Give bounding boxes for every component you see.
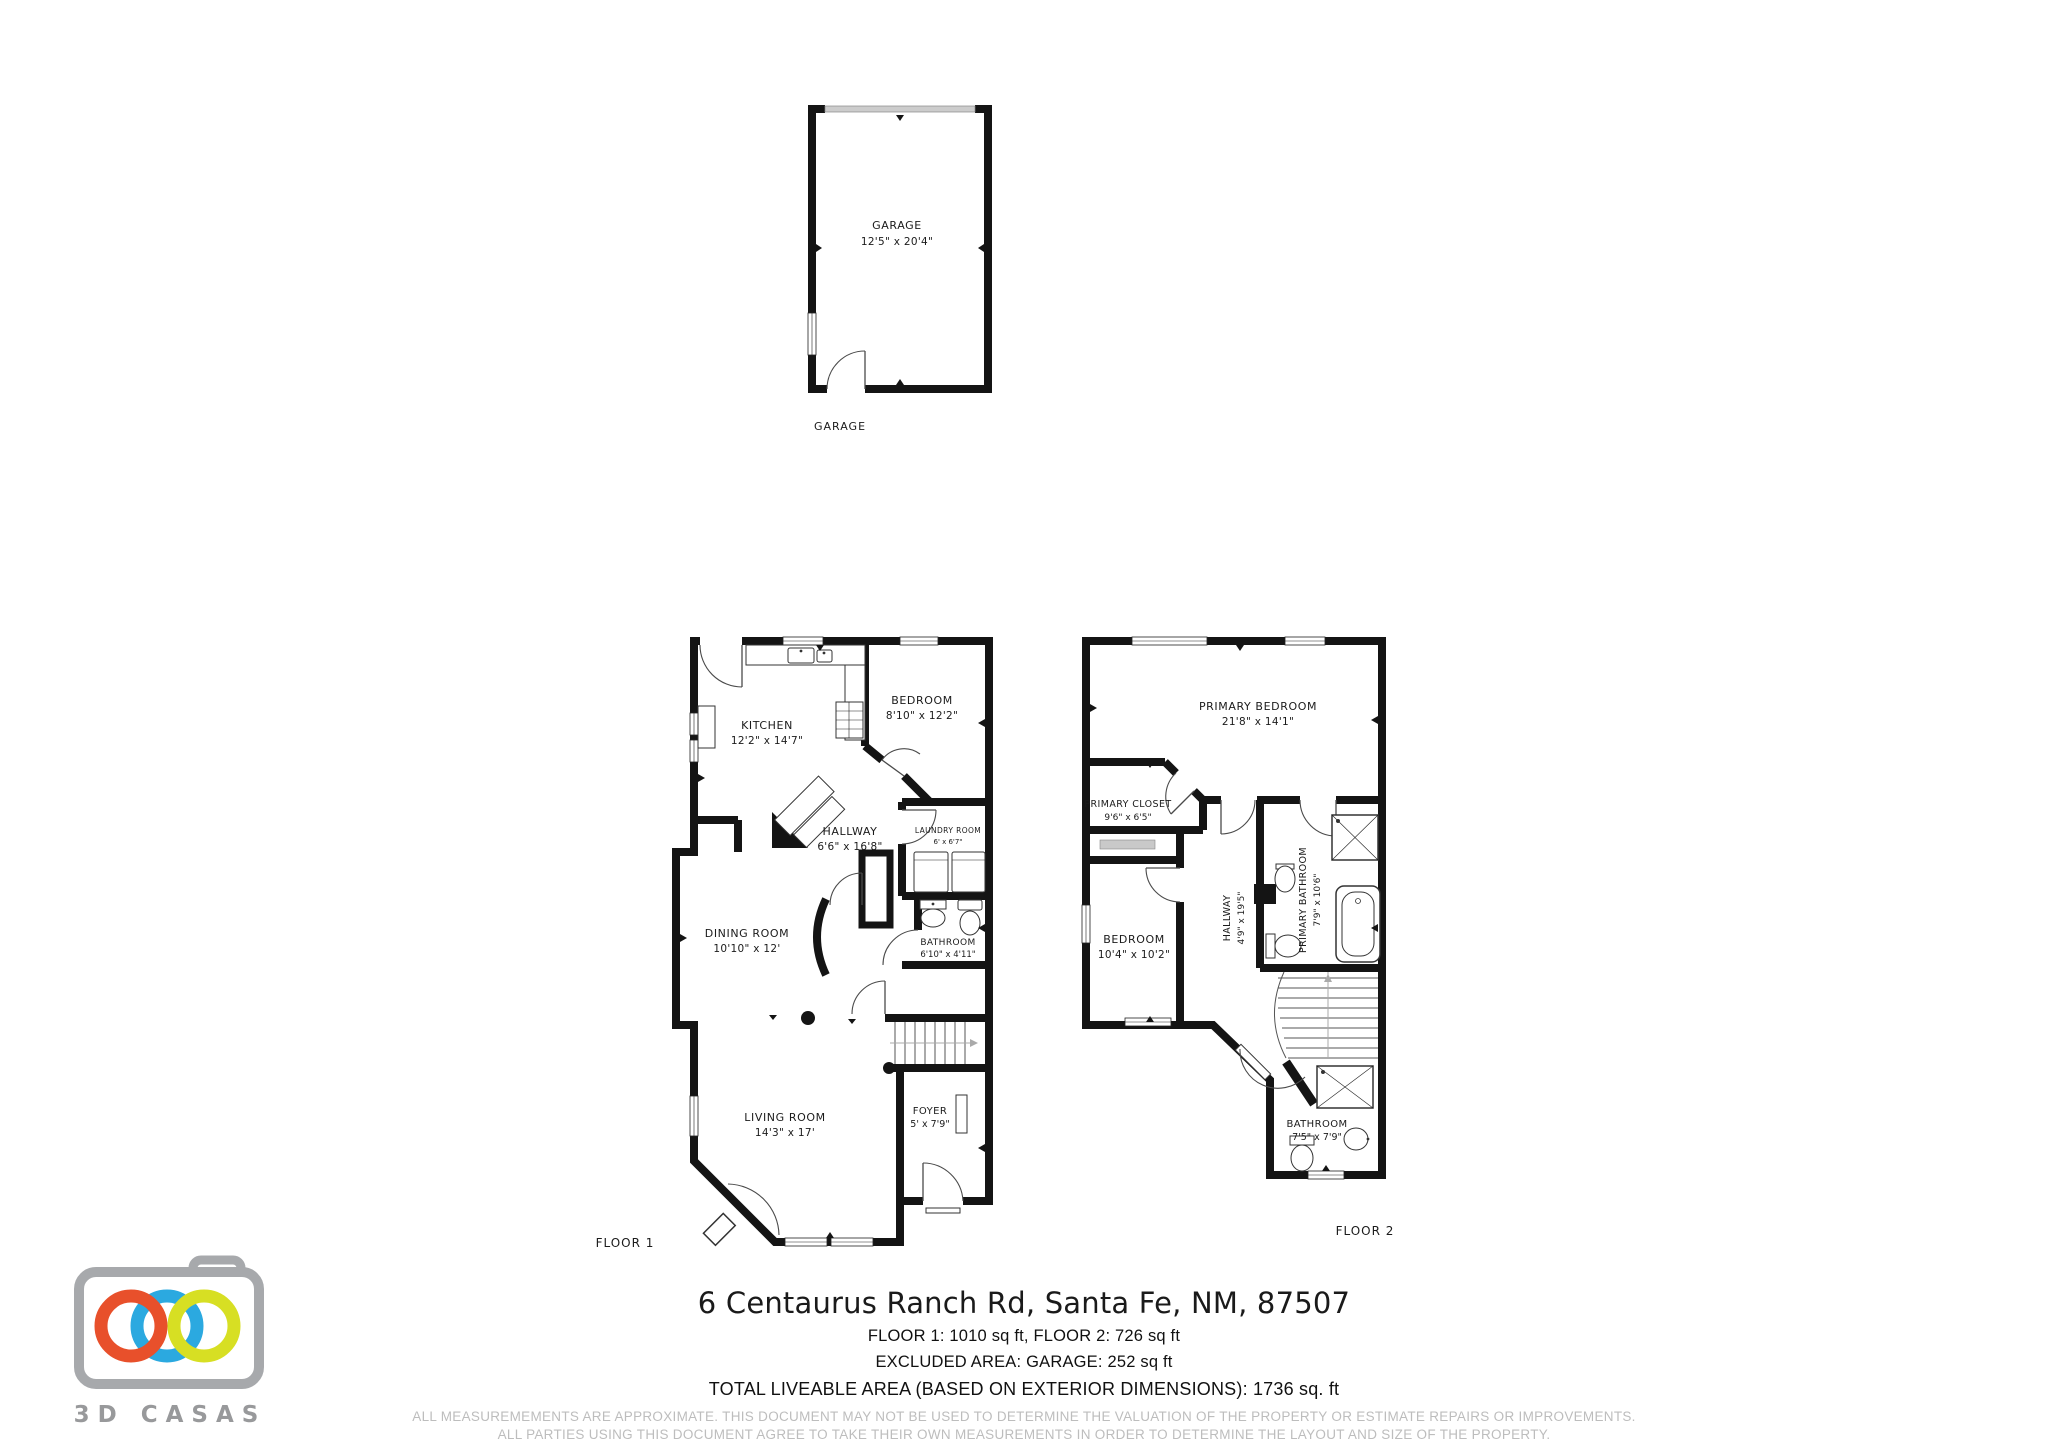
bathtub-icon — [1336, 886, 1380, 962]
room-dims-laundry: 6' x 6'7" — [933, 838, 962, 846]
garage-room-label: GARAGE — [872, 219, 922, 232]
excluded-area-line: EXCLUDED AREA: GARAGE: 252 sq ft — [0, 1353, 2048, 1372]
fireplace-icon — [703, 1213, 735, 1245]
room-dims-bathroom2: 7'5" x 7'9" — [1292, 1132, 1342, 1143]
room-dims-hallway2: 4'9" x 19'5" — [1237, 892, 1247, 945]
room-label-primary-bathroom: PRIMARY BATHROOM — [1298, 847, 1309, 953]
room-dims-primary-bathroom: 7'9" x 10'6" — [1313, 874, 1323, 927]
toilet-icon — [960, 911, 980, 935]
shower-icon — [1332, 815, 1378, 860]
disclaimer-line2: ALL PARTIES USING THIS DOCUMENT AGREE TO… — [0, 1427, 2048, 1442]
sink-icon — [1344, 1128, 1368, 1150]
room-dims-foyer: 5' x 7'9" — [910, 1119, 949, 1130]
total-area-line: TOTAL LIVEABLE AREA (BASED ON EXTERIOR D… — [0, 1379, 2048, 1400]
property-address: 6 Centaurus Ranch Rd, Santa Fe, NM, 8750… — [0, 1286, 2048, 1320]
column — [801, 1011, 815, 1025]
room-label-bathroom2: BATHROOM — [1286, 1119, 1347, 1130]
room-dims-bathroom1: 6'10" x 4'11" — [920, 950, 975, 960]
room-label-foyer: FOYER — [913, 1106, 947, 1117]
garage-door — [825, 106, 975, 112]
room-label-kitchen: KITCHEN — [741, 719, 793, 732]
stairs-floor2 — [1274, 972, 1378, 1058]
room-dims-dining: 10'10" x 12' — [713, 943, 780, 955]
toilet-tank-icon — [958, 900, 982, 910]
floor-areas-line: FLOOR 1: 1010 sq ft, FLOOR 2: 726 sq ft — [0, 1327, 2048, 1346]
room-label-primary-closet: PRIMARY CLOSET — [1084, 799, 1171, 810]
foyer-closet — [956, 1095, 967, 1133]
logo-text: 3D CASAS — [73, 1402, 267, 1428]
stove-icon — [836, 702, 863, 738]
footer: 6 Centaurus Ranch Rd, Santa Fe, NM, 8750… — [0, 1286, 2048, 1442]
laundry-appliances — [914, 852, 985, 892]
primary-bathroom-fixtures — [1266, 815, 1380, 962]
garage-caption: GARAGE — [775, 420, 905, 433]
camera-logo-icon — [73, 1256, 267, 1406]
garage-entry-door — [827, 351, 865, 394]
floor2-caption: FLOOR 2 — [1300, 1224, 1430, 1238]
room-dims-kitchen: 12'2" x 14'7" — [731, 735, 803, 747]
room-dims-bedroom1: 8'10" x 12'2" — [886, 710, 958, 722]
room-label-dining: DINING ROOM — [705, 927, 790, 940]
room-dims-primary-bedroom: 21'8" x 14'1" — [1222, 716, 1294, 728]
room-dims-living: 14'3" x 17' — [755, 1127, 815, 1139]
room-label-living: LIVING ROOM — [744, 1111, 825, 1124]
floorplan-document: GARAGE 12'5" x 20'4" GARAGE — [0, 0, 2048, 1448]
garage-walls — [808, 104, 988, 394]
room-label-bedroom2: BEDROOM — [1103, 933, 1165, 946]
room-label-hallway2: HALLWAY — [1222, 895, 1233, 942]
garage-plan: GARAGE 12'5" x 20'4" — [805, 98, 995, 403]
fridge-icon — [698, 706, 715, 748]
room-label-bedroom1: BEDROOM — [891, 694, 953, 707]
bathroom1-fixtures — [920, 900, 982, 935]
washer-icon — [914, 852, 948, 892]
toilet-icon — [1291, 1145, 1313, 1171]
garage-window — [808, 313, 816, 355]
garage-room-dims: 12'5" x 20'4" — [861, 236, 933, 248]
toilet-tank-icon — [1266, 934, 1275, 958]
floor1-plan: KITCHEN 12'2" x 14'7" BEDROOM 8'10" x 12… — [660, 628, 1005, 1278]
stair-newel — [883, 1062, 895, 1074]
room-label-hallway1: HALLWAY — [823, 825, 878, 838]
room-dims-hallway1: 6'6" x 16'8" — [817, 841, 882, 853]
room-label-primary-bedroom: PRIMARY BEDROOM — [1199, 700, 1317, 713]
disclaimer-line1: ALL MEASUREMEMENTS ARE APPROXIMATE. THIS… — [0, 1409, 2048, 1424]
room-dims-bedroom2: 10'4" x 10'2" — [1098, 949, 1170, 961]
room-dims-primary-closet: 9'6" x 6'5" — [1104, 813, 1151, 823]
room-label-laundry: LAUNDRY ROOM — [915, 826, 981, 835]
floor2-plan: PRIMARY BEDROOM 21'8" x 14'1" PRIMARY CL… — [1070, 628, 1400, 1203]
room-label-bathroom1: BATHROOM — [920, 938, 975, 948]
dryer-icon — [952, 852, 985, 892]
company-logo: 3D CASAS — [73, 1256, 267, 1438]
shower-icon — [1317, 1066, 1373, 1108]
floor1-caption: FLOOR 1 — [560, 1236, 690, 1250]
